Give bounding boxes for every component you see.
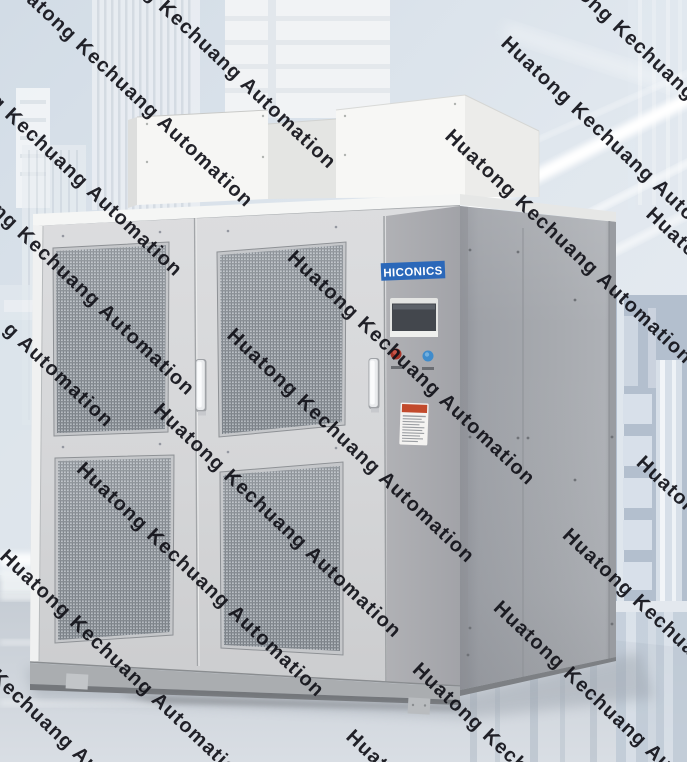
svg-text:HICONICS: HICONICS	[383, 265, 443, 279]
